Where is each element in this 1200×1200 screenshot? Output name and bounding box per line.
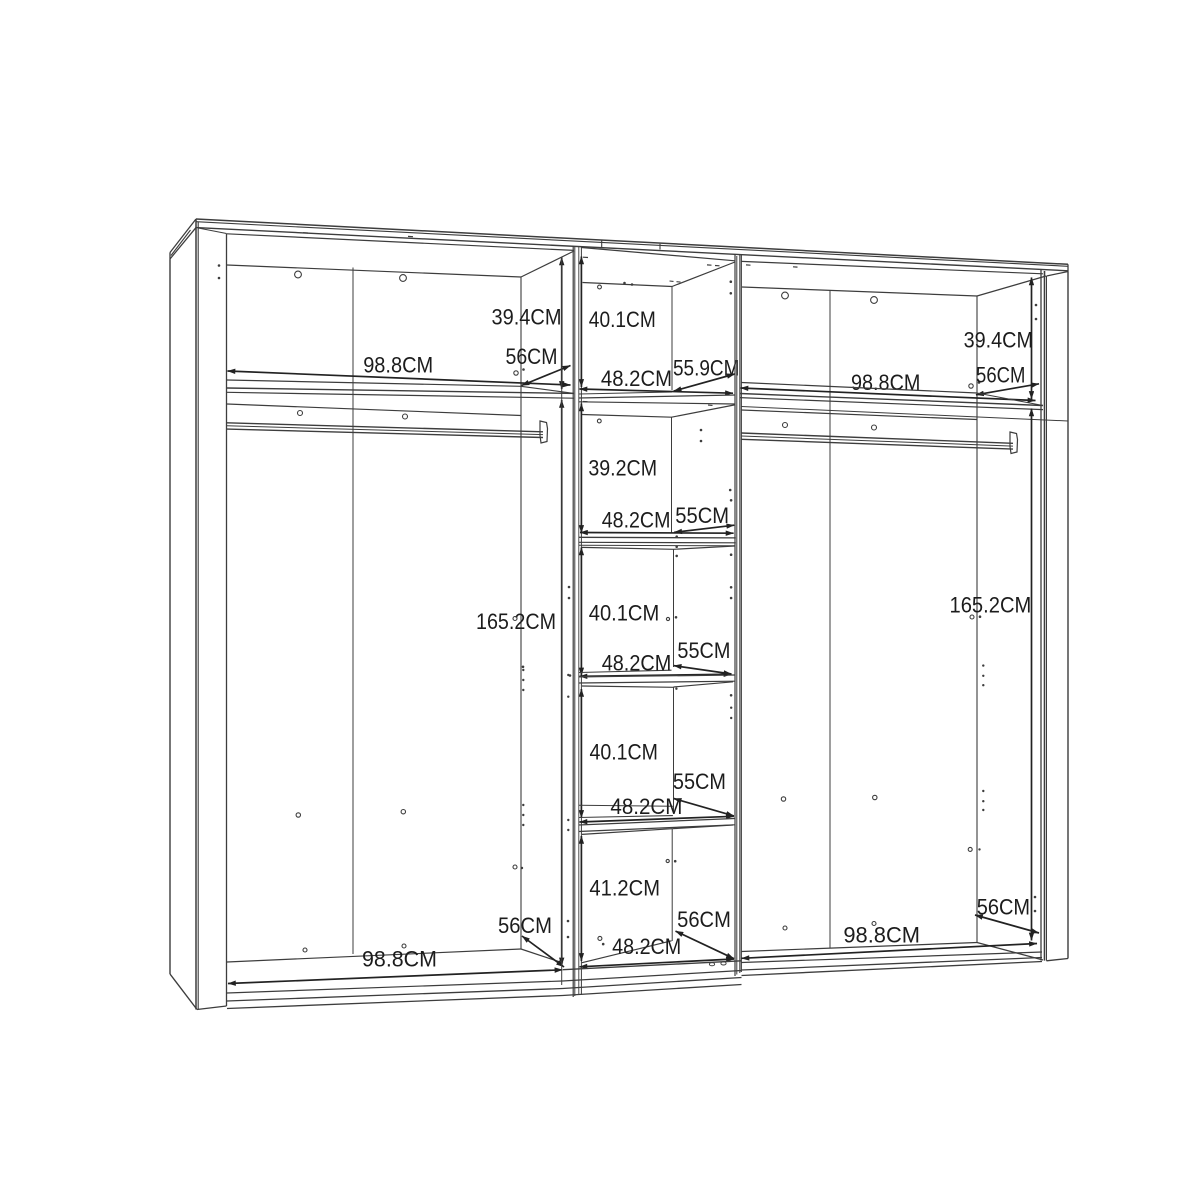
svg-text:48.2CM: 48.2CM	[612, 934, 681, 959]
svg-text:40.1CM: 40.1CM	[589, 740, 658, 765]
svg-text:98.8CM: 98.8CM	[363, 352, 433, 377]
svg-text:98.8CM: 98.8CM	[843, 923, 920, 948]
svg-text:56CM: 56CM	[506, 344, 558, 369]
svg-text:56CM: 56CM	[498, 913, 552, 938]
svg-text:40.1CM: 40.1CM	[589, 601, 660, 626]
svg-text:98.8CM: 98.8CM	[851, 370, 920, 395]
svg-text:56CM: 56CM	[677, 907, 731, 932]
svg-text:55CM: 55CM	[675, 503, 729, 528]
svg-text:55.9CM: 55.9CM	[673, 356, 740, 381]
svg-text:55CM: 55CM	[677, 638, 730, 663]
svg-text:56CM: 56CM	[977, 894, 1030, 919]
svg-text:55CM: 55CM	[673, 769, 726, 794]
svg-text:165.2CM: 165.2CM	[476, 609, 556, 634]
svg-text:48.2CM: 48.2CM	[602, 508, 671, 533]
svg-text:40.1CM: 40.1CM	[589, 307, 656, 332]
svg-text:165.2CM: 165.2CM	[950, 593, 1032, 618]
svg-text:39.4CM: 39.4CM	[492, 305, 562, 330]
svg-text:56CM: 56CM	[976, 362, 1025, 387]
svg-text:39.4CM: 39.4CM	[964, 328, 1033, 353]
svg-text:98.8CM: 98.8CM	[362, 947, 437, 972]
svg-text:48.2CM: 48.2CM	[601, 366, 672, 391]
svg-text:41.2CM: 41.2CM	[589, 875, 660, 900]
svg-text:48.2CM: 48.2CM	[610, 794, 682, 819]
svg-text:39.2CM: 39.2CM	[588, 456, 657, 481]
svg-text:48.2CM: 48.2CM	[602, 651, 672, 676]
